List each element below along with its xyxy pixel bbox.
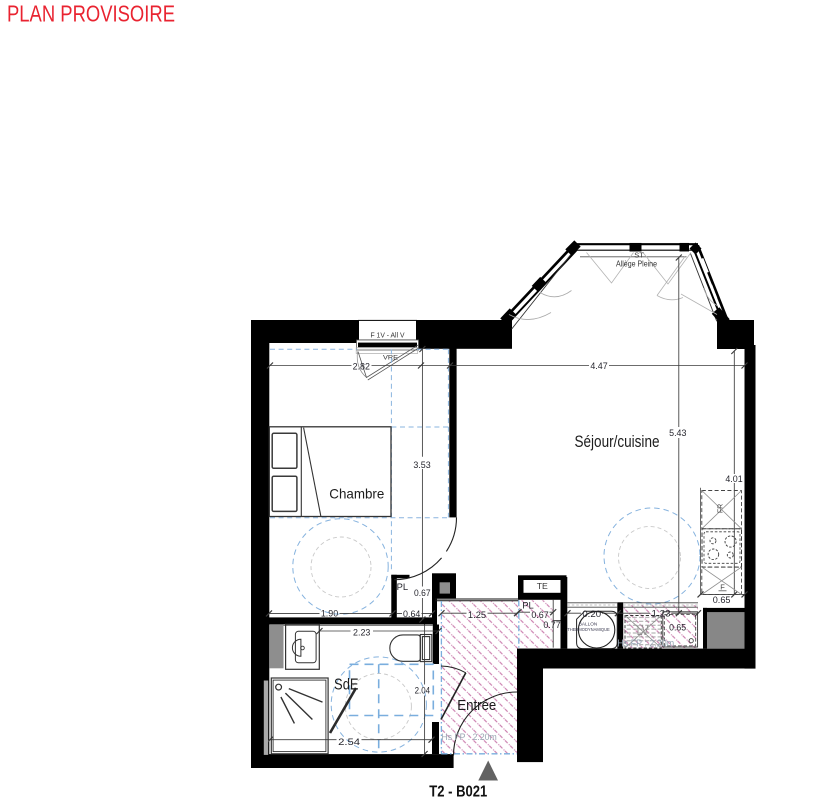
svg-text:Hs FP : 2.20m: Hs FP : 2.20m [617,639,674,650]
svg-text:Chambre: Chambre [329,486,384,501]
svg-text:1.25: 1.25 [468,609,486,620]
svg-text:Allège Pleine: Allège Pleine [616,259,657,269]
svg-text:PL: PL [397,581,408,592]
svg-text:2.82: 2.82 [353,360,370,371]
svg-text:4.47: 4.47 [590,360,607,371]
svg-text:F 1V - All V: F 1V - All V [371,330,406,339]
svg-text:Hs FP : 2.20m: Hs FP : 2.20m [441,732,497,742]
svg-text:Entrée: Entrée [457,698,496,714]
svg-text:1.23: 1.23 [652,608,671,619]
svg-text:0.64: 0.64 [403,608,420,619]
svg-text:0.65: 0.65 [713,594,731,605]
svg-text:2.04: 2.04 [415,685,430,696]
svg-text:TE: TE [537,581,548,591]
svg-text:VRE: VRE [383,355,398,362]
svg-text:4.01: 4.01 [725,473,742,484]
svg-text:2.23: 2.23 [353,627,370,638]
svg-text:3.53: 3.53 [413,459,430,470]
svg-text:F: F [720,583,725,592]
svg-text:Séjour/cuisine: Séjour/cuisine [575,433,660,451]
svg-text:0.65: 0.65 [669,622,686,633]
svg-text:T2 - B021: T2 - B021 [429,783,487,800]
svg-text:0.77: 0.77 [543,619,560,630]
svg-text:5.43: 5.43 [669,427,686,438]
svg-text:1.90: 1.90 [321,607,338,618]
svg-text:0.67: 0.67 [414,587,431,598]
svg-text:BALLON: BALLON [579,622,598,627]
svg-text:PLAN PROVISOIRE: PLAN PROVISOIRE [7,0,175,26]
svg-text:THERMODYNAMIQUE: THERMODYNAMIQUE [567,627,610,632]
svg-text:2.54: 2.54 [338,736,360,747]
svg-text:FR: FR [718,504,725,513]
svg-text:LV: LV [637,622,649,639]
svg-text:SdE: SdE [334,677,359,694]
svg-text:0.20: 0.20 [582,608,601,619]
